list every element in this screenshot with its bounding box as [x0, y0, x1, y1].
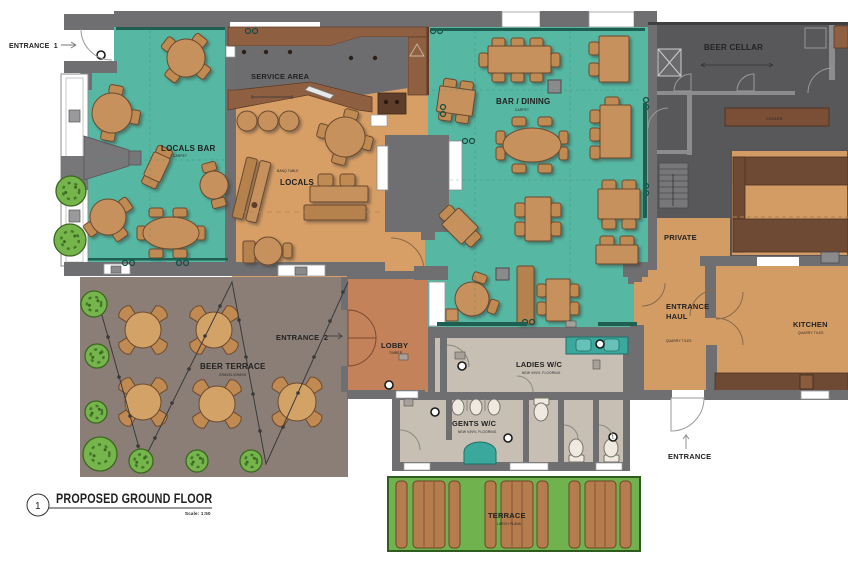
svg-text:ENTRANCE: ENTRANCE [668, 452, 711, 461]
svg-text:CARPET: CARPET [173, 154, 187, 158]
svg-text:TERRACE: TERRACE [488, 511, 526, 520]
svg-text:Scale: 1:50: Scale: 1:50 [185, 511, 211, 516]
svg-text:COOLER: COOLER [766, 117, 783, 121]
svg-text:CARPET: CARPET [515, 108, 529, 112]
svg-text:LOBBY: LOBBY [381, 341, 408, 350]
svg-text:NEW VINYL FLOORING: NEW VINYL FLOORING [522, 371, 561, 375]
svg-text:ENTRANCE: ENTRANCE [666, 302, 709, 311]
svg-text:KITCHEN: KITCHEN [793, 320, 828, 329]
svg-text:GRAVEL/GRASS: GRAVEL/GRASS [219, 373, 246, 377]
svg-text:QUARRY TILES: QUARRY TILES [666, 339, 692, 343]
svg-text:GENTS W/C: GENTS W/C [452, 419, 497, 428]
svg-text:BEER CELLAR: BEER CELLAR [704, 43, 763, 52]
svg-text:SERVICE AREA: SERVICE AREA [251, 72, 310, 81]
svg-text:PROPOSED GROUND FLOOR: PROPOSED GROUND FLOOR [56, 491, 212, 506]
svg-text:LARCH PLANK: LARCH PLANK [497, 522, 522, 526]
svg-text:LOCALS: LOCALS [280, 178, 315, 187]
svg-text:BANQ TABLE: BANQ TABLE [277, 169, 299, 173]
svg-text:PRIVATE: PRIVATE [664, 233, 697, 242]
svg-text:HAUL: HAUL [666, 312, 688, 321]
svg-text:1: 1 [35, 501, 41, 512]
svg-text:QUARRY TILES: QUARRY TILES [798, 331, 824, 335]
svg-text:LOCALS BAR: LOCALS BAR [161, 144, 215, 153]
svg-text:NEW VINYL FLOORING: NEW VINYL FLOORING [458, 430, 497, 434]
svg-text:BAR / DINING: BAR / DINING [496, 97, 550, 106]
svg-text:LADIES W/C: LADIES W/C [516, 360, 563, 369]
svg-text:ENTRANCE 2: ENTRANCE 2 [276, 333, 328, 342]
svg-text:BEER TERRACE: BEER TERRACE [200, 362, 266, 371]
svg-text:ENTRANCE 1: ENTRANCE 1 [9, 43, 58, 50]
